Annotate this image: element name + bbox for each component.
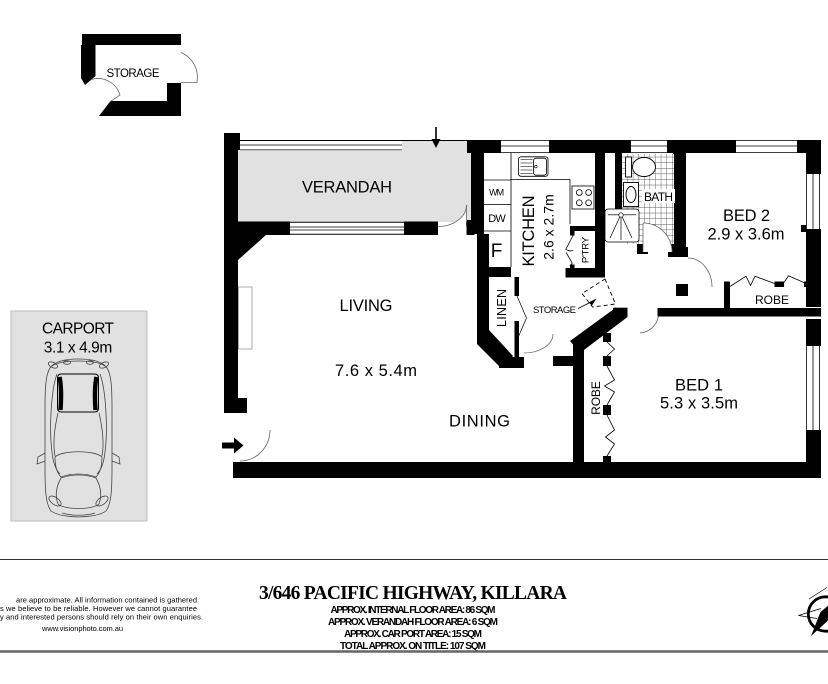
svg-text:KITCHEN: KITCHEN <box>520 196 538 267</box>
svg-text:VERANDAH: VERANDAH <box>302 179 392 197</box>
svg-text:CARPORT: CARPORT <box>42 321 115 338</box>
svg-text:APPROX. CAR PORT AREA: 15 SQM: APPROX. CAR PORT AREA: 15 SQM <box>344 629 482 640</box>
svg-text:3.1 x 4.9m: 3.1 x 4.9m <box>44 340 113 357</box>
svg-text:WM: WM <box>489 188 504 198</box>
svg-text:STORAGE: STORAGE <box>107 68 160 80</box>
svg-text:P'TRY: P'TRY <box>581 236 592 263</box>
svg-text:STORAGE: STORAGE <box>533 305 576 316</box>
svg-text:2.9 x 3.6m: 2.9 x 3.6m <box>708 226 785 244</box>
svg-text:APPROX. INTERNAL FLOOR AREA: 8: APPROX. INTERNAL FLOOR AREA: 86 SQM <box>331 605 496 616</box>
svg-text:F: F <box>491 241 503 262</box>
svg-text:3/646 PACIFIC HIGHWAY, KILLARA: 3/646 PACIFIC HIGHWAY, KILLARA <box>259 583 567 604</box>
svg-text:BED 1: BED 1 <box>675 377 723 395</box>
svg-text:y and interested persons shoul: y and interested persons should rely on … <box>0 613 203 622</box>
svg-text:2.6 x 2.7m: 2.6 x 2.7m <box>541 194 557 260</box>
svg-text:ROBE: ROBE <box>589 381 603 415</box>
svg-text:7.6 x 5.4m: 7.6 x 5.4m <box>335 362 417 380</box>
svg-text:BED 2: BED 2 <box>723 207 770 225</box>
svg-text:ROBE: ROBE <box>755 293 789 307</box>
svg-text:LINEN: LINEN <box>495 289 509 327</box>
svg-text:BATH: BATH <box>644 190 673 204</box>
svg-text:APPROX. VERANDAH FLOOR AREA: 6: APPROX. VERANDAH FLOOR AREA: 6 SQM <box>328 617 498 628</box>
svg-text:DINING: DINING <box>449 413 510 431</box>
svg-text:www.visionphoto.com.au: www.visionphoto.com.au <box>41 624 123 633</box>
svg-text:LIVING: LIVING <box>340 297 393 315</box>
svg-text:5.3 x 3.5m: 5.3 x 3.5m <box>660 395 738 413</box>
svg-text:DW: DW <box>488 213 506 225</box>
